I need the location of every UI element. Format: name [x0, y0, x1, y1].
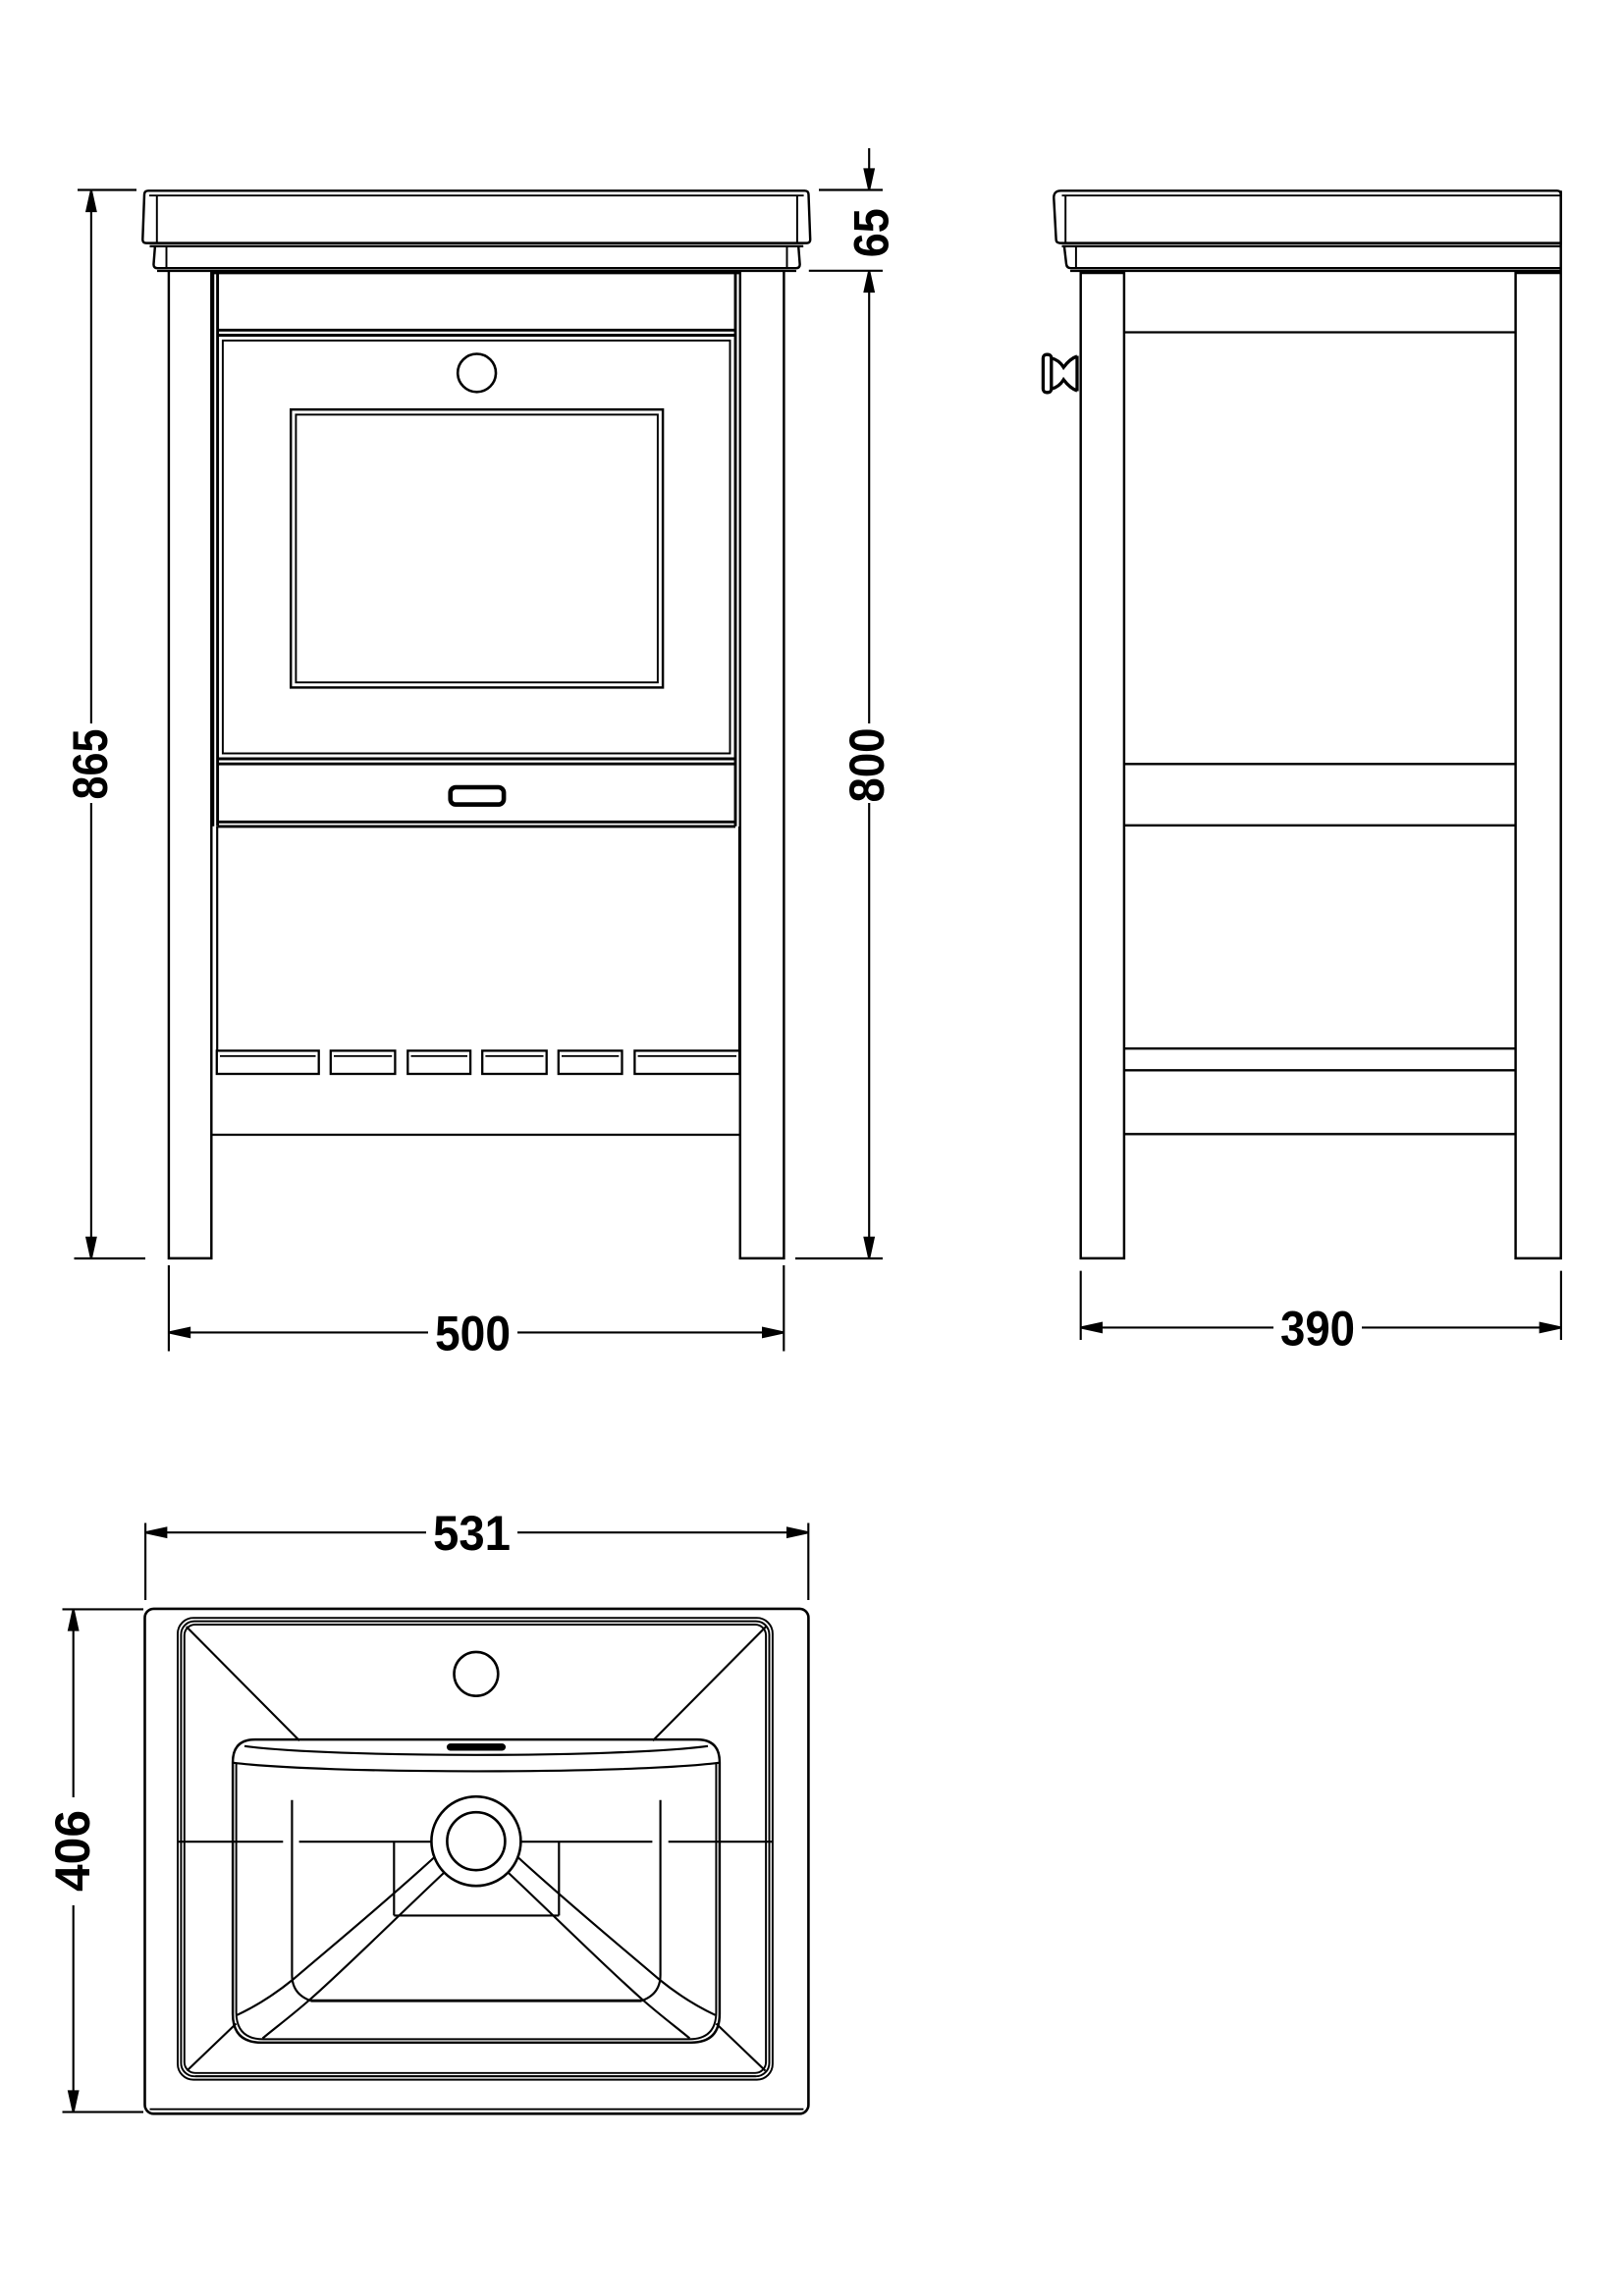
svg-text:500: 500	[435, 1306, 511, 1361]
svg-text:800: 800	[839, 728, 894, 803]
svg-text:390: 390	[1280, 1301, 1355, 1356]
svg-text:531: 531	[433, 1506, 511, 1561]
svg-text:865: 865	[63, 729, 118, 800]
svg-text:65: 65	[844, 208, 899, 257]
svg-text:406: 406	[45, 1810, 100, 1892]
